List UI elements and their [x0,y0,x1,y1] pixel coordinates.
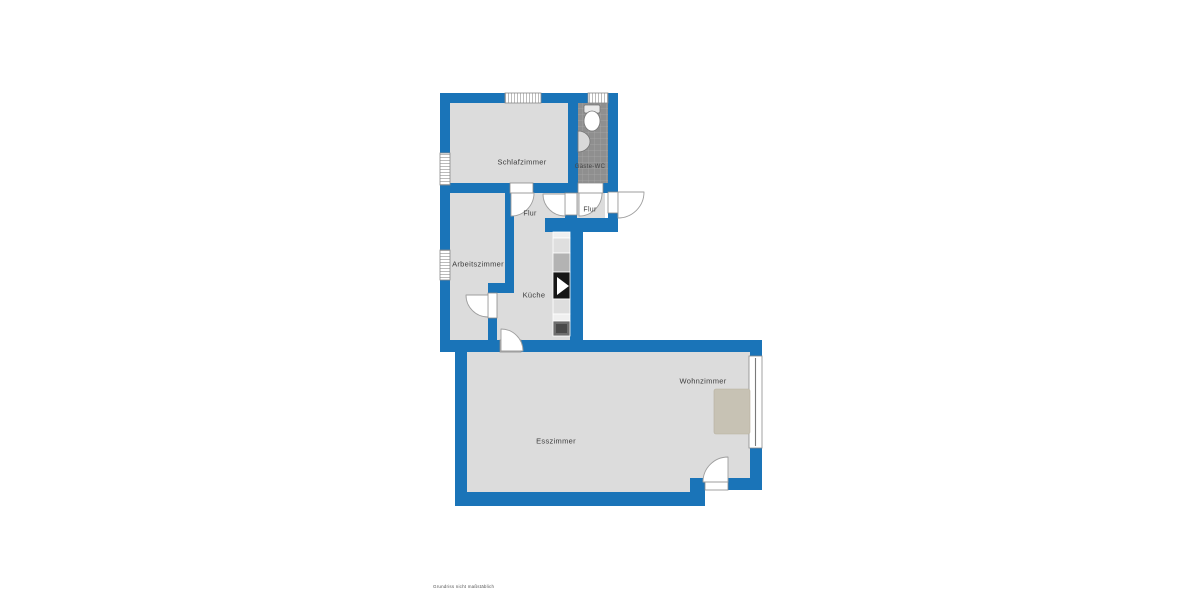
room-label-kueche: Küche [523,291,546,299]
wall-bigroom-top [440,340,762,352]
door-frame-wc [578,183,603,193]
wall-left-upper [440,93,450,352]
wall-bigroom-bottom [455,492,705,506]
room-fill-schlafzimmer [450,103,568,183]
counter-segment [553,238,570,253]
counter-segment [553,314,570,321]
room-label-flur-eingang: Flur [583,207,596,214]
door-swing-entrance [618,192,644,218]
wall-flur-notch [545,218,618,232]
wall-arbeitszimmer-divider-step [488,283,514,293]
room-label-esszimmer: Esszimmer [536,437,576,445]
kitchen-counter [553,232,570,336]
toilet-icon [584,105,600,131]
counter-segment [553,232,570,238]
window-arbeitszimmer-left [440,250,450,280]
counter-segment [553,253,570,272]
window-schlafzimmer-top [505,93,541,103]
window-schlafzimmer-left [440,153,450,185]
counter-segment [553,299,570,314]
door-frame-arbeitszimmer [488,293,497,318]
door-frame-entrance [608,192,618,213]
room-label-flur-oben: Flur [523,211,536,218]
room-label-gaeste-wc: Gäste-WC [575,164,605,170]
disclaimer-note: Grundriss nicht maßstäblich [433,585,494,590]
room-label-arbeitszimmer: Arbeitszimmer [452,260,504,268]
wall-bigroom-left [455,352,467,506]
door-frame-flur [565,193,577,215]
floorplan-svg [0,0,1200,600]
floorplan-canvas: Schlafzimmer Gäste-WC Flur Flur Arbeitsz… [0,0,1200,600]
wall-kueche-right [570,232,583,352]
counter-segment-inner [556,324,567,333]
rug [714,389,750,434]
window-wc-top [588,93,608,103]
wall-schlafzimmer-wc-divider [568,103,578,183]
room-label-schlafzimmer: Schlafzimmer [497,158,546,166]
door-frame-schlafzimmer [510,183,533,193]
room-label-wohnzimmer: Wohnzimmer [679,377,726,385]
